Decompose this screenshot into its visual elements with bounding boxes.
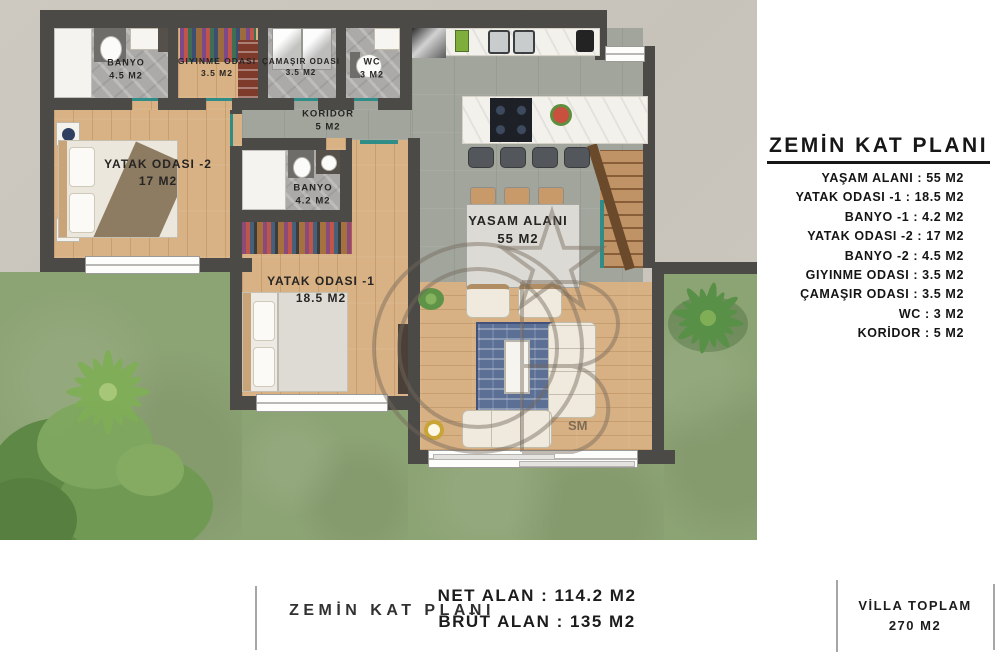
room-name: BANYO <box>107 56 145 69</box>
bar-stool-3 <box>532 147 558 168</box>
label-yatak1: YATAK ODASI -1 18.5 M2 <box>267 273 375 307</box>
label-camasir: ÇAMAŞIR ODASI 3.5 M2 <box>262 56 340 78</box>
staircase <box>600 150 643 268</box>
wall-outer-top <box>40 10 607 28</box>
room-area: 4.5 M2 <box>107 69 145 82</box>
room-list-line: YATAK ODASI -1 : 18.5 M2 <box>734 188 964 207</box>
door-sill-bedroom1 <box>360 140 398 144</box>
dining-chair-2 <box>504 187 530 205</box>
label-banyo2: BANYO 4.2 M2 <box>293 182 332 209</box>
footer-villa-value: 270 M2 <box>845 618 985 633</box>
label-koridor: KORIDOR 5 M2 <box>302 108 354 135</box>
room-list-line: GIYINME ODASI : 3.5 M2 <box>734 266 964 285</box>
bedroom1-console <box>398 324 408 394</box>
floor-lamp <box>424 420 444 440</box>
room-list-line: WC : 3 M2 <box>734 305 964 324</box>
room-list-line: ÇAMAŞIR ODASI : 3.5 M2 <box>734 285 964 304</box>
door-sill-bathroom1 <box>132 98 158 101</box>
bed1-duvet <box>277 293 348 392</box>
sofa-right <box>548 322 596 418</box>
island-fruit-bowl <box>550 104 572 126</box>
room-name: GIYINME ODASI <box>178 56 256 68</box>
bar-stool-2 <box>500 147 526 168</box>
armchair-2 <box>518 284 562 318</box>
room-list-line: YAŞAM ALANI : 55 M2 <box>734 169 964 188</box>
stair-glass-panel <box>600 200 604 268</box>
room-name: YATAK ODASI -2 <box>104 156 212 173</box>
footer-divider-right <box>993 584 995 650</box>
room-area: 4.2 M2 <box>293 195 332 208</box>
room-area: 3.5 M2 <box>262 67 340 78</box>
bed1-pillow-1 <box>253 301 275 341</box>
bedroom2-window <box>85 256 200 274</box>
door-sill-laundry <box>294 98 318 101</box>
room-area: 5 M2 <box>302 121 354 134</box>
kitchen-sink-1 <box>488 30 510 54</box>
bathroom2-toilet <box>288 150 314 178</box>
panel-room-list: YAŞAM ALANI : 55 M2 YATAK ODASI -1 : 18.… <box>734 169 964 344</box>
footer-villa-label: VİLLA TOPLAM <box>845 598 985 613</box>
bed1-headboard <box>243 293 251 392</box>
living-sliding-door <box>428 450 638 468</box>
door-sill-wc <box>354 98 378 101</box>
bathroom1-vanity <box>130 28 160 50</box>
room-list-line: KORİDOR : 5 M2 <box>734 324 964 343</box>
bed1-pillow-2 <box>253 347 275 387</box>
bathroom1-shower <box>54 28 92 98</box>
wc-vanity <box>374 28 400 50</box>
room-list-line: BANYO -1 : 4.2 M2 <box>734 208 964 227</box>
room-name: KORIDOR <box>302 108 354 121</box>
room-area: 17 M2 <box>104 173 212 190</box>
footer-divider-mid <box>836 580 838 652</box>
room-area: 3.5 M2 <box>178 68 256 80</box>
wall-div-banyo-giyinme <box>168 28 178 98</box>
label-giyinme: GIYINME ODASI 3.5 M2 <box>178 56 256 80</box>
island-cooktop <box>490 98 532 142</box>
wall-bathroom2-bottom <box>230 210 352 222</box>
armchair-1 <box>466 284 510 318</box>
room-name: YASAM ALANI <box>468 212 568 230</box>
room-name: WC <box>360 55 384 68</box>
kitchen-sink-2 <box>513 30 535 54</box>
label-banyo1: BANYO 4.5 M2 <box>107 56 145 81</box>
label-yasam: YASAM ALANI 55 M2 <box>468 212 568 248</box>
bed2-headboard <box>59 141 67 238</box>
entry-door <box>605 46 645 62</box>
room-name: BANYO <box>293 182 332 195</box>
bed-bedroom1 <box>242 292 348 392</box>
footer-brut-alan: BRÜT ALAN : 135 M2 <box>422 612 652 632</box>
door-sill-dressing <box>206 98 232 101</box>
floorplan-page: BANYO 4.5 M2 GIYINME ODASI 3.5 M2 ÇAMAŞI… <box>0 0 1000 664</box>
label-wc: WC 3 M2 <box>360 55 384 80</box>
room-list-line: BANYO -2 : 4.5 M2 <box>734 247 964 266</box>
area-list-panel: ZEMİN KAT PLANI YAŞAM ALANI : 55 M2 YATA… <box>757 0 1000 540</box>
door-gap-bathroom2 <box>326 138 346 150</box>
wall-kitchen-right <box>643 55 655 268</box>
label-yatak2: YATAK ODASI -2 17 M2 <box>104 156 212 190</box>
bar-stool-4 <box>564 147 590 168</box>
room-area: 55 M2 <box>468 230 568 248</box>
wall-living-right <box>652 268 664 464</box>
bar-stool-1 <box>468 147 494 168</box>
bathroom1-cabinet <box>158 28 168 52</box>
room-area: 3 M2 <box>360 68 384 81</box>
bedroom1-wardrobe <box>242 222 352 254</box>
kitchen-coffee-machine <box>576 30 594 52</box>
bathroom2-vanity <box>316 150 340 174</box>
wall-outer-left <box>40 10 54 272</box>
panel-title-text: ZEMİN KAT PLANI <box>767 134 990 164</box>
footer-divider-left <box>255 586 257 650</box>
bathroom2-shower <box>242 150 286 210</box>
dining-chair-1 <box>470 187 496 205</box>
living-plant <box>418 288 444 310</box>
door-sill-bedroom2 <box>230 114 233 146</box>
kitchen-bottle-rack <box>455 30 469 52</box>
coffee-table <box>504 340 530 394</box>
kitchen-fridge <box>412 28 446 58</box>
dining-chair-3 <box>538 187 564 205</box>
panel-title: ZEMİN KAT PLANI <box>757 134 1000 164</box>
floorplan-render: BANYO 4.5 M2 GIYINME ODASI 3.5 M2 ÇAMAŞI… <box>0 0 757 540</box>
bedroom1-window <box>256 394 388 412</box>
sofa-bottom <box>462 410 552 448</box>
room-list-line: YATAK ODASI -2 : 17 M2 <box>734 227 964 246</box>
footer-net-alan: NET ALAN : 114.2 M2 <box>422 586 652 606</box>
bed2-pillow-2 <box>69 193 95 233</box>
room-area: 18.5 M2 <box>267 290 375 307</box>
wall-div-wc-kitchen <box>400 10 412 110</box>
bed2-pillow-1 <box>69 147 95 187</box>
room-name: YATAK ODASI -1 <box>267 273 375 290</box>
room-name: ÇAMAŞIR ODASI <box>262 56 340 67</box>
footer-bar: ZEMİN KAT PLANI NET ALAN : 114.2 M2 BRÜT… <box>0 540 1000 664</box>
